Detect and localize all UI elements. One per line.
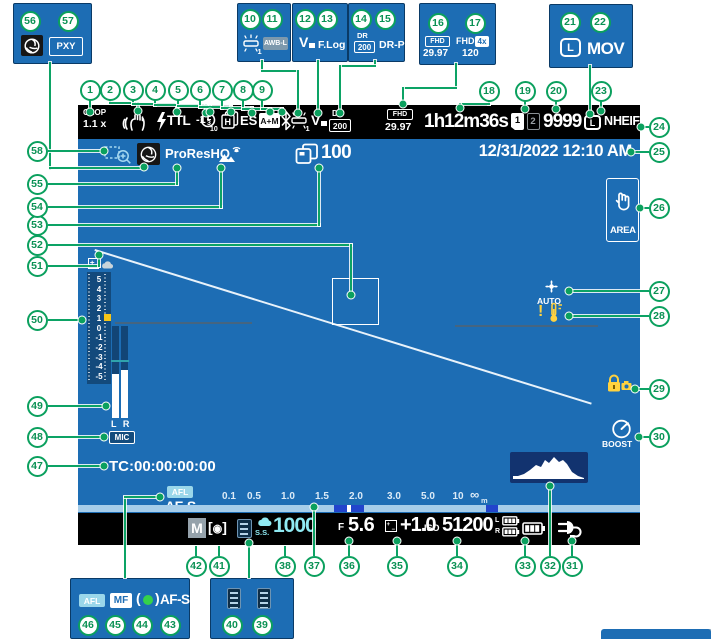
callout-connector-line [261,70,299,72]
callout-anchor-dot [631,385,640,394]
callout-anchor-dot [568,537,577,546]
callout-35: 35 [387,556,408,577]
distance-label: 1.5 [308,491,336,502]
callout-anchor-dot [173,108,182,117]
callout-anchor-dot [156,493,165,502]
callout-19: 19 [515,81,536,102]
callout-connector-line [218,546,220,556]
callout-anchor-dot [345,537,354,546]
callout-7: 7 [212,80,233,101]
exposure-scale-value: 2 [89,305,109,313]
callout-44: 44 [132,615,153,636]
callout-anchor-dot [399,100,408,109]
callout-anchor-dot [521,537,530,546]
metering-icon: [◉] [208,520,227,535]
exposure-scale-value: -4 [89,363,109,371]
callout-37: 37 [304,556,325,577]
callout-anchor-dot [173,164,182,173]
callout-10: 10 [240,9,261,30]
mf-badge: MF [110,593,132,608]
callout-anchor-dot [217,164,226,173]
callout-connector-line [48,224,320,226]
callout-14: 14 [351,9,372,30]
callout-anchor-dot [627,148,636,157]
distance-unit: m [481,497,488,505]
callout-anchor-dot [100,462,109,471]
shutter-speed-value: 1000 [273,515,316,536]
callout-anchor-dot [134,107,143,116]
callout-anchor-dot [294,109,303,118]
mic-limit-line [111,360,129,362]
highspeed-rate: 120 [462,49,479,59]
callout-53: 53 [27,215,48,236]
svg-text:H: H [225,117,232,127]
callout-11: 11 [262,9,283,30]
callout-connector-line [48,150,105,152]
callout-anchor-dot [245,539,254,548]
aperture-label: F [338,523,344,533]
exposure-scale-value: -3 [89,354,109,362]
fhd-legend-rate: 29.97 [423,49,448,59]
weather-cloud-icon [257,516,272,527]
callout-anchor-dot [315,164,324,173]
callout-27: 27 [649,281,670,302]
movie-frame-rate: 29.97 [385,122,411,133]
callout-anchor-dot [227,108,236,117]
callout-connector-line [284,546,286,556]
callout-36: 36 [339,556,360,577]
horizon-reference-left [115,322,252,324]
callout-connector-line [339,65,341,114]
svg-text:1: 1 [306,124,310,132]
movie-control-badge-a [227,588,241,609]
afs-legend-label: AF-S [160,593,190,607]
shutter-speed-label: S.S. [255,529,269,537]
callout-connector-line [568,315,649,317]
distance-label: 0.5 [240,491,268,502]
dynamic-range-value-badge: 200 [329,119,351,132]
callout-40: 40 [222,615,243,636]
callout-connector-line [568,290,649,292]
exposure-comp-icon: + − [385,520,397,532]
proxy-recording-badge: PXY [49,37,83,56]
flog-label: F.Log [318,40,345,51]
callout-connector-line [297,70,299,114]
mic-channel-labels: L R [111,420,131,429]
movie-format-badge: FHD [387,109,413,120]
temperature-warning-mark: ! [538,304,543,320]
callout-21: 21 [560,12,581,33]
callout-13: 13 [317,9,338,30]
fhd-legend-badge: FHD [425,36,450,47]
callout-anchor-dot [278,108,287,117]
movie-control-badge-b [257,588,271,609]
exposure-scale-value: 4 [89,286,109,294]
white-balance-legend-icon: 1 [243,33,262,55]
callout-24: 24 [649,117,670,138]
dr-legend-label: DR [357,32,368,40]
callout-anchor-dot [456,104,465,113]
exposure-scale-value: -2 [89,344,109,352]
callout-anchor-dot [100,433,109,442]
callout-anchor-dot [586,110,595,119]
callout-connector-line [402,87,457,89]
callout-connector-line [49,167,145,169]
focus-indicator: ( ) [136,591,162,609]
callout-anchor-dot [336,109,345,118]
callout-28: 28 [649,306,670,327]
distance-label: 1.0 [274,491,302,502]
callout-anchor-dot [635,433,644,442]
temperature-warning-icon [549,302,563,324]
movie-control-badge [237,519,252,538]
manual-diagram-page: CROP 1.1 x TTL -1 23 10 H ES A+M [0,0,711,639]
callout-8: 8 [233,80,254,101]
callout-connector-line [48,465,105,467]
callout-54: 54 [27,197,48,218]
callout-38: 38 [275,556,296,577]
callout-42: 42 [186,556,207,577]
callout-30: 30 [649,427,670,448]
callout-17: 17 [465,13,486,34]
callout-9: 9 [252,80,273,101]
crop-factor: 1.1 x [83,119,106,130]
touch-hand-icon [614,189,632,213]
callout-connector-line [48,183,178,185]
aperture-value: 5.6 [348,515,374,535]
distance-label: 10 [444,491,472,502]
callout-connector-line [549,485,551,556]
callout-12: 12 [295,9,316,30]
callout-anchor-dot [206,108,215,117]
callout-4: 4 [145,80,166,101]
callout-20: 20 [546,81,567,102]
battery-level-icon [522,522,546,535]
callout-29: 29 [649,379,670,400]
callout-anchor-dot [453,537,462,546]
callout-31: 31 [562,556,583,577]
highspeed-4x-badge: 4x [475,36,489,47]
date-time: 12/31/2022 12:10 AM [400,143,632,160]
callout-48: 48 [27,427,48,448]
focus-frame [332,278,379,325]
depth-of-field-segment-2 [486,505,498,512]
af-lock-badge: AFL [167,486,193,498]
focus-check-zoom-icon [104,145,132,164]
callout-anchor-dot [637,123,646,132]
callout-connector-line [318,168,320,226]
frame-buffer-count: 100 [321,143,351,162]
callout-anchor-dot [393,537,402,546]
legend-box-21-22: L MOV [549,4,633,68]
callout-58: 58 [27,141,48,162]
exposure-cloud-icon [101,260,113,269]
callout-connector-line [195,546,197,556]
callout-anchor-dot [521,105,530,114]
distance-label: 3.0 [380,491,408,502]
callout-anchor-dot [546,482,555,491]
image-quality: N [604,115,613,128]
mic-badge: MIC [109,431,135,444]
callout-39: 39 [252,615,273,636]
callout-connector-line [339,65,376,67]
callout-connector-line [48,265,100,267]
location-data-icon [219,146,242,164]
callout-anchor-dot [100,147,109,156]
movie-optimized-legend-icon: V [299,34,316,52]
digital-image-stabilizer-icon [137,143,160,165]
callout-34: 34 [447,556,468,577]
callout-anchor-dot [565,287,574,296]
callout-connector-line [248,543,250,578]
callout-55: 55 [27,174,48,195]
callout-anchor-dot [266,108,275,117]
distance-label: 0.1 [215,491,243,502]
callout-anchor-dot [78,316,87,325]
exposure-scale-value: -1 [89,334,109,342]
callout-anchor-dot [310,503,319,512]
callout-23: 23 [591,81,612,102]
distance-label: 2.0 [342,491,370,502]
callout-26: 26 [649,198,670,219]
callout-anchor-dot [552,105,561,114]
callout-connector-line [350,244,352,296]
recording-time-remaining: 1h12m36s [424,112,508,131]
callout-49: 49 [27,396,48,417]
exposure-scale-value: 0 [89,325,109,333]
iso-value: 51200 [442,515,493,535]
digital-image-stabilizer-legend-icon [21,35,43,56]
callout-anchor-dot [248,109,257,118]
focus-distance-marker [347,505,351,512]
shooting-mode-badge: M [188,518,206,538]
callout-6: 6 [190,80,211,101]
callout-3: 3 [123,80,144,101]
histogram [510,452,588,483]
callout-anchor-dot [102,402,111,411]
exposure-scale: 543210-1-2-3-4-5 [87,272,111,384]
mov-format-label: MOV [587,40,624,57]
afl-legend-badge: AFL [79,594,105,607]
callout-15: 15 [375,9,396,30]
callout-anchor-dot [347,291,356,300]
callout-anchor-dot [597,107,606,116]
frames-remaining: 9999 [543,112,581,131]
callout-16: 16 [428,13,449,34]
mic-level-left-bar [112,374,119,418]
svg-text:1: 1 [258,47,262,55]
horizon-reference-right [455,325,598,327]
callout-connector-line [220,168,222,208]
callout-47: 47 [27,456,48,477]
callout-43: 43 [160,615,181,636]
callout-connector-line [48,405,107,407]
card-slot-1-icon: 1 [511,113,524,130]
exposure-level-marker [104,314,111,321]
highspeed-format: FHD [456,37,475,46]
callout-connector-line [48,436,105,438]
callout-connector-line [317,60,319,114]
card-slot-2-icon: 2 [527,113,540,130]
boost-gauge-icon [610,419,633,439]
page-fragment [601,629,711,639]
callout-32: 32 [540,556,561,577]
exposure-scale-value: -5 [89,373,109,381]
callout-anchor-dot [140,163,149,172]
callout-5: 5 [168,80,189,101]
callout-anchor-dot [95,251,104,260]
focus-confirm-dot [143,595,153,605]
time-code: TC:00:00:00:00 [109,459,216,474]
frame-buffer-icon [295,143,319,165]
svg-text:10: 10 [210,126,218,132]
callout-connector-line [48,244,352,246]
callout-50: 50 [27,310,48,331]
callout-connector-line [313,506,315,556]
dr-priority-label: DR-P [379,40,405,51]
callout-56: 56 [20,11,41,32]
legend-box-16-17: FHD 29.97 FHD 4x 120 [419,3,496,65]
callout-33: 33 [515,556,536,577]
mic-level-right-bar [121,370,128,418]
callout-25: 25 [649,142,670,163]
flash-bolt-icon [157,112,166,131]
callout-anchor-dot [565,312,574,321]
callout-18: 18 [479,81,500,102]
callout-anchor-dot [86,108,95,117]
callout-connector-line [455,63,457,89]
callout-anchor-dot [636,204,645,213]
area-touch-button[interactable]: AREA [606,178,639,242]
exposure-scale-value: 3 [89,295,109,303]
callout-51: 51 [27,256,48,277]
callout-57: 57 [58,11,79,32]
size-l-legend-badge: L [560,38,581,57]
dr-legend-value: 200 [354,41,375,53]
distance-infinity: ∞ [470,488,479,501]
distance-label: 5.0 [414,491,442,502]
callout-2: 2 [100,80,121,101]
file-format: HEIF [613,115,639,128]
callout-52: 52 [27,235,48,256]
callout-connector-line [48,206,222,208]
callout-46: 46 [78,615,99,636]
cooling-fan-icon [541,276,562,297]
iso-label: ISO [424,524,440,533]
awb-lock-badge: AWB-L [263,37,288,50]
callout-anchor-dot [314,109,323,118]
callout-41: 41 [209,556,230,577]
callout-22: 22 [590,12,611,33]
callout-45: 45 [105,615,126,636]
exposure-scale-value: 5 [89,276,109,284]
callout-1: 1 [80,80,101,101]
callout-connector-line [124,497,126,578]
boost-mode-label: BOOST [602,440,632,449]
callout-connector-line [49,62,51,170]
